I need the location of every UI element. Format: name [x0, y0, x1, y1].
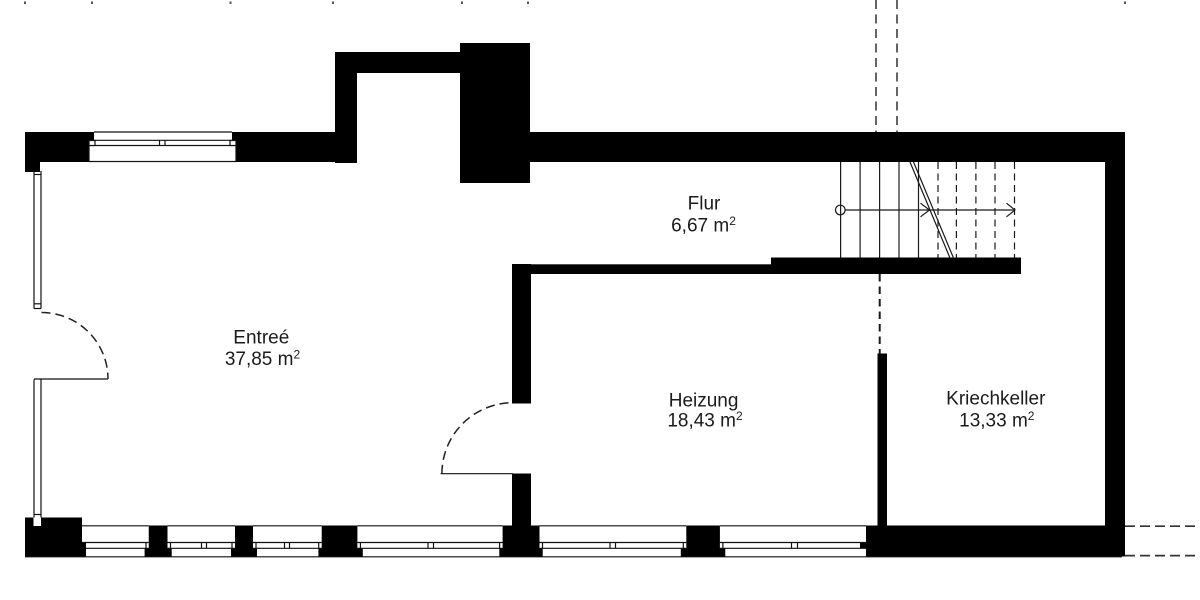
svg-text:Heizung: Heizung — [669, 391, 739, 412]
svg-text:6,67 m2: 6,67 m2 — [671, 214, 736, 237]
svg-text:13,33 m2: 13,33 m2 — [959, 409, 1035, 432]
svg-text:Kriechkeller: Kriechkeller — [946, 388, 1046, 409]
svg-text:18,43 m2: 18,43 m2 — [667, 409, 743, 432]
svg-text:Entreé: Entreé — [233, 328, 289, 349]
svg-text:Flur: Flur — [688, 193, 721, 214]
svg-text:37,85 m2: 37,85 m2 — [225, 348, 301, 371]
